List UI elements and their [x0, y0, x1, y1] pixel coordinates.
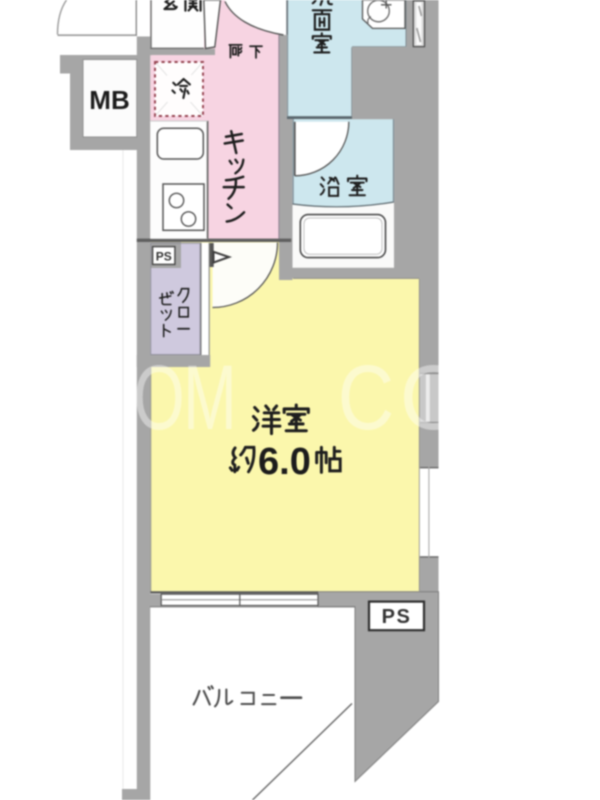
- svg-text:6.0: 6.0: [258, 441, 311, 483]
- svg-text:O: O: [133, 345, 185, 448]
- svg-text:C: C: [338, 347, 394, 449]
- svg-text:PS: PS: [156, 249, 172, 263]
- svg-text:O: O: [400, 347, 468, 450]
- svg-text:M: M: [183, 346, 237, 449]
- svg-text:PS: PS: [382, 606, 412, 628]
- svg-text:MB: MB: [89, 85, 129, 115]
